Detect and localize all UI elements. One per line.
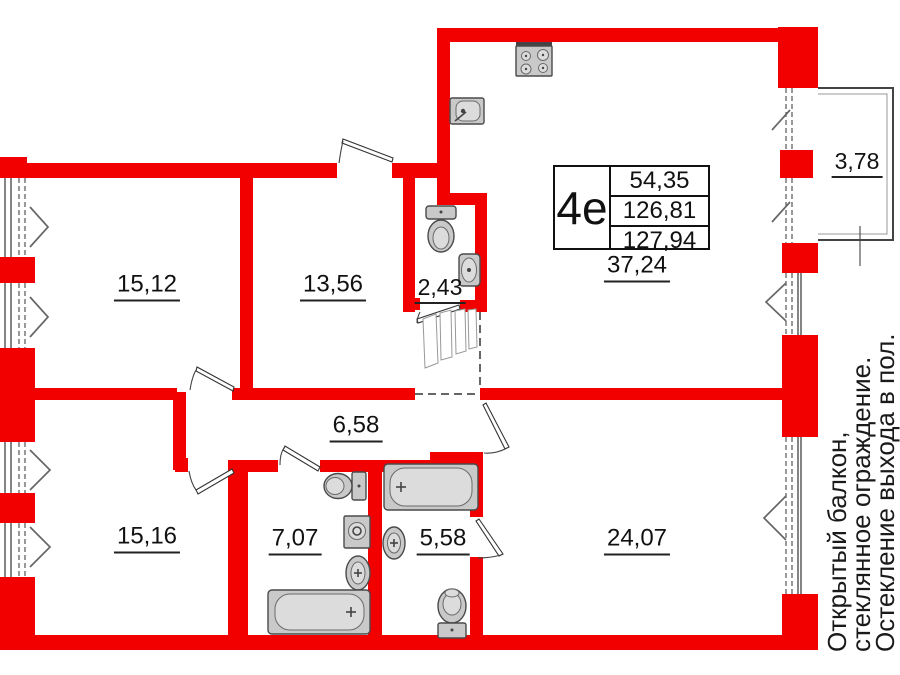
balcony-annotation-line: Остекление выхода в пол. [873,252,897,652]
unit-type-label: 4е [555,167,611,248]
unit-total-area-with-balcony: 127,94 [611,225,708,255]
room-area-label: 24,07 [604,525,670,556]
room-area-label: 37,24 [604,252,670,283]
toilet-icon [426,206,456,252]
door-swing-icon-bath2 [476,519,503,558]
floor-plan: 15,12 13,56 2,43 37,24 6,58 15,16 7,07 5… [0,0,900,675]
unit-info-box: 4е 54,35 126,81 127,94 [553,165,710,250]
unit-areas: 54,35 126,81 127,94 [611,167,708,248]
room-area-label: 2,43 [415,274,466,304]
wash-basin-icon [346,556,370,590]
bathtub-icon [384,464,478,510]
door-swing-icon-room6 [189,469,234,494]
room-area-label: 6,58 [330,412,383,443]
toilet-icon [324,472,366,500]
toilet-icon [438,589,466,638]
plan-drawing [0,0,900,675]
door-swing-icon-entrance [339,139,393,163]
bathtub-icon [268,590,370,634]
unit-total-area: 126,81 [611,195,708,225]
unit-living-area: 54,35 [611,167,708,195]
room-area-label: 15,16 [114,523,180,554]
room-area-label: 5,58 [417,525,470,556]
wash-basin-icon [383,527,405,559]
door-swing-icon-room1 [190,367,234,391]
kitchen-sink-icon [450,98,484,124]
washing-machine-icon [344,516,370,548]
wardrobe-icon [423,309,477,368]
walls [0,27,818,650]
room-area-label: 15,12 [114,271,180,302]
door-swing-icon-bath1 [280,446,320,471]
balcony-annotation: Открытый балкон, стеклянное ограждение. … [825,252,897,652]
room-area-label: 13,56 [300,271,366,302]
room-area-label: 7,07 [269,525,322,556]
balcony-area-label: 3,78 [832,148,883,178]
stove-icon [516,42,552,76]
door-swing-icon-room9 [483,403,509,453]
